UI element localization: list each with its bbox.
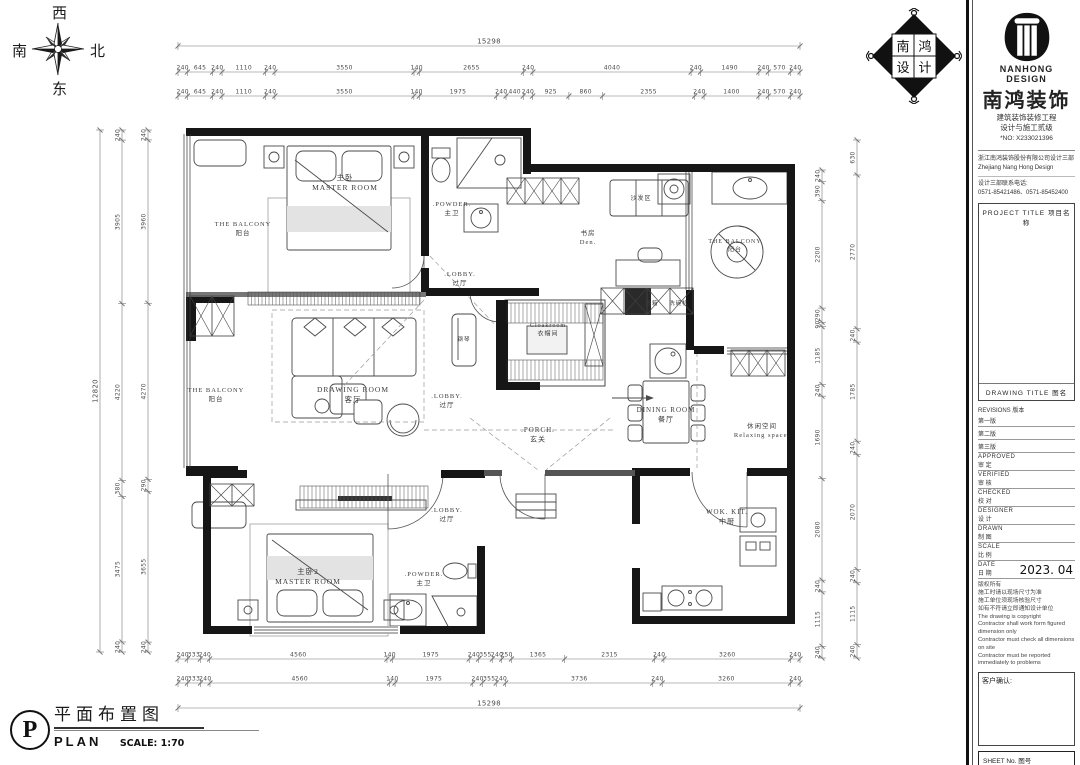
dim-value: 240 [653, 652, 665, 659]
dim-value: 1110 [236, 89, 252, 96]
drawing-title-label: DRAWING TITLE 图名 [979, 383, 1074, 397]
dim-value: 240 [789, 65, 801, 72]
date-value: 2023. 04 [1020, 563, 1073, 577]
field-cn: 审 核 [978, 478, 1075, 487]
room-label-sofa-area: 沙发区 [630, 194, 651, 202]
floor-plan-drawing: 主卧MASTER ROOMTHE BALCONY阳台.POWDER.主卫.LOB… [0, 0, 1080, 765]
note-line-4: 如有不符请立即通知设计单位 [978, 606, 1075, 614]
room-label-fridge: 冰箱 [645, 299, 658, 307]
dim-value: 1975 [426, 676, 442, 683]
dim-value: 860 [580, 89, 592, 96]
note-line-3: 施工单位须现场核验尺寸 [978, 598, 1075, 606]
dim-value: 240 [264, 89, 276, 96]
stamp-char-2: 鸿 [918, 39, 931, 54]
dim-value: 240 [815, 170, 822, 182]
window-glazing [686, 172, 692, 290]
note-line-8: Contractor must be reported immediately … [978, 653, 1075, 669]
company-name-en: NANHONG DESIGN [978, 64, 1075, 84]
revision-row-1: 第一版 [978, 414, 1075, 427]
room-label-lobby-3: .LOBBY.过厅 [431, 507, 462, 523]
note-line-5: The drawing is copyright [978, 614, 1075, 622]
dim-value: 570 [773, 89, 785, 96]
client-confirm-box[interactable]: 客户确认: [978, 672, 1075, 746]
dim-value: 1490 [721, 65, 737, 72]
dim-chain-bottom-row-2: 2403332404560140197524035524037362403260… [176, 676, 803, 688]
room-label-balcony-left: THE BALCONY阳台 [188, 387, 245, 403]
dim-value: 240 [815, 384, 822, 396]
dim-value: 90 [815, 320, 822, 328]
dim-value: 240 [850, 645, 857, 657]
room-label-dishwasher: 洗碗机 [669, 299, 689, 307]
dim-value: 3475 [115, 561, 122, 577]
dim-value: 240 [522, 89, 534, 96]
stamp-char-3: 设 [896, 60, 909, 75]
dim-value: 1110 [236, 65, 252, 72]
dim-value: 240 [211, 65, 223, 72]
dim-value: 240 [177, 89, 189, 96]
sheet-number-label: SHEET No. 图号 [983, 755, 1070, 765]
dim-value: 12820 [92, 379, 100, 403]
dim-value: 4270 [141, 383, 148, 399]
dim-value: 240 [850, 329, 857, 341]
signature-fields: APPROVED审 定VERIFIED审 核CHECKED校 对DESIGNER… [978, 453, 1075, 579]
dim-value: 240 [115, 129, 122, 141]
field-cn: 设 计 [978, 514, 1075, 523]
compass-west-label: 西 [52, 2, 67, 23]
dim-value: 645 [194, 65, 206, 72]
dim-value: 645 [194, 89, 206, 96]
hatch-layer [190, 178, 785, 508]
cabinet-xbox [210, 484, 254, 506]
dim-value: 240 [815, 646, 822, 658]
dim-value: 240 [693, 89, 705, 96]
plan-title-cn: 平面布置图 [54, 700, 204, 729]
cabinet-xbox [507, 178, 579, 204]
dim-value: 2070 [850, 504, 857, 520]
dim-value: 240 [468, 652, 480, 659]
closet-hatch [507, 303, 603, 323]
stamp-diamond-icon: 南 鸿 设 计 [866, 8, 962, 104]
dim-value: 140 [411, 65, 423, 72]
dim-chain-top-total: 15298 [176, 38, 803, 51]
room-label-relaxing-space: 休闲空间Relaxing space. [734, 421, 790, 439]
company-stamp: 南 鸿 设 计 [866, 8, 962, 104]
field-row-checked: CHECKED校 对 [978, 489, 1075, 507]
dim-value: 250 [500, 652, 512, 659]
revisions-label: REVISIONS 版本 [978, 405, 1075, 414]
dim-value: 140 [386, 676, 398, 683]
note-line-1: 版权所有 [978, 582, 1075, 590]
window-glazing [727, 348, 787, 354]
dim-value: 1400 [723, 89, 739, 96]
dim-value: 240 [815, 580, 822, 592]
field-row-scale: SCALE比 例 [978, 543, 1075, 561]
dim-value: 3960 [141, 213, 148, 229]
dim-chain-bottom-row-1: 2403332404560140197524035524025013652315… [176, 652, 803, 664]
dim-value: 3550 [336, 65, 352, 72]
room-label-balcony-top-left: THE BALCONY阳台 [215, 221, 272, 237]
compass-north-label: 北 [90, 40, 105, 61]
dim-value: 440 [508, 89, 520, 96]
dim-value: 570 [773, 65, 785, 72]
room-label-powder-2: .POWDER.主卫 [405, 571, 444, 587]
room-label-wok-kitchen: WOK. KIT.中厨 [706, 508, 748, 526]
field-cn: 审 定 [978, 460, 1075, 469]
note-line-2: 施工时请以现场尺寸为准 [978, 590, 1075, 598]
dim-value: 240 [471, 676, 483, 683]
field-cn: 比 例 [978, 550, 1075, 559]
dim-value: 15298 [477, 700, 501, 708]
dim-chain-top-row-1: 2406452401110240355014026552404040240149… [176, 65, 803, 77]
plan-title-block: P 平面布置图 PLAN SCALE: 1:70 [10, 700, 270, 751]
field-row-designer: DESIGNER设 计 [978, 507, 1075, 525]
phone-numbers: 0571-85421486、0571-85452400 [978, 189, 1075, 198]
dim-value: 4560 [292, 676, 308, 683]
cert-line-1: 建筑装饰装修工程 [978, 113, 1075, 123]
dim-value: 380 [115, 482, 122, 494]
compass-rose: 西 北 东 南 [6, 2, 106, 100]
revision-row-3: 第三版 [978, 440, 1075, 453]
dim-value: 240 [789, 652, 801, 659]
field-row-date: DATE日 期2023. 04 [978, 561, 1075, 579]
plan-title-en: PLAN [54, 734, 101, 749]
note-line-6: Contractor shall work form figured dimen… [978, 621, 1075, 637]
compass-east-label: 东 [52, 78, 67, 99]
dim-value: 240 [211, 89, 223, 96]
dim-value: 140 [410, 89, 422, 96]
dim-value: 3736 [571, 676, 587, 683]
dim-value: 240 [141, 129, 148, 141]
dim-value: 240 [522, 65, 534, 72]
dim-value: 1975 [450, 89, 466, 96]
closet-hatch [507, 360, 603, 380]
field-cn: 校 对 [978, 496, 1075, 505]
dim-value: 4040 [604, 65, 620, 72]
dim-value: 240 [757, 89, 769, 96]
title-block: NANHONG DESIGN 南鸿装饰 建筑装饰装修工程 设计与施工贰级 *NO… [966, 0, 1080, 765]
dim-value: 3655 [141, 558, 148, 574]
plan-scale: SCALE: 1:70 [120, 738, 184, 749]
dim-value: 3260 [718, 676, 734, 683]
project-title-label: PROJECT TITLE 项目名称 [979, 204, 1074, 227]
dim-chain-top-row-2: 2406452401110240355014019752404402409258… [176, 89, 803, 101]
dim-value: 1365 [530, 652, 546, 659]
compass-south-label: 南 [12, 40, 27, 61]
room-label-powder-1: .POWDER.主卫 [433, 201, 472, 217]
dim-value: 2770 [850, 244, 857, 260]
cabinet-xbox [585, 304, 603, 366]
revisions-section: REVISIONS 版本 第一版第二版第三版 [978, 405, 1075, 453]
dim-value: 140 [384, 652, 396, 659]
dim-value: 2355 [640, 89, 656, 96]
dim-value: 4560 [290, 652, 306, 659]
dim-value: 1185 [815, 347, 822, 363]
dim-value: 390 [815, 185, 822, 197]
cert-number: *NO: X233021396 [978, 135, 1075, 142]
dim-value: 355 [483, 676, 495, 683]
field-cn: 制 图 [978, 532, 1075, 541]
dim-value: 240 [850, 442, 857, 454]
dim-chain-right-outer: 6302770240178524020702401115240 [850, 138, 862, 661]
cert-line-2: 设计与施工贰级 [978, 123, 1075, 133]
room-label-lobby-2: .LOBBY.过厅 [431, 393, 462, 409]
dim-value: 240 [177, 65, 189, 72]
drawing-sheet: 主卧MASTER ROOMTHE BALCONY阳台.POWDER.主卫.LOB… [0, 0, 1080, 765]
field-row-approved: APPROVED审 定 [978, 453, 1075, 471]
dim-chain-left-total: 12820 [92, 128, 105, 655]
note-line-7: Contractor must check all dimensions on … [978, 637, 1075, 653]
room-label-lobby-1: .LOBBY.过厅 [444, 271, 475, 287]
dim-value: 2200 [815, 246, 822, 262]
furniture [192, 138, 787, 636]
dim-value: 2080 [815, 521, 822, 537]
field-row-verified: VERIFIED审 核 [978, 471, 1075, 489]
stamp-char-1: 南 [896, 39, 909, 54]
dept-name-en: Zhejiang Nang Hong Design [978, 164, 1075, 173]
dim-value: 1115 [850, 605, 857, 621]
dim-value: 4220 [115, 384, 122, 400]
dim-value: 1115 [815, 611, 822, 627]
dim-value: 15298 [477, 38, 501, 46]
dim-value: 290 [815, 309, 822, 321]
dim-value: 925 [545, 89, 557, 96]
dim-value: 2655 [463, 65, 479, 72]
dim-value: 240 [651, 676, 663, 683]
sheet-number-box: SHEET No. 图号 饰施 - 04 PROJECT No. 项目编号 [978, 751, 1075, 765]
dim-value: 3260 [719, 652, 735, 659]
plan-symbol-circle: P [10, 710, 50, 750]
phone-label: 设计三部联系电话: [978, 180, 1075, 189]
dim-value: 355 [479, 652, 491, 659]
dim-value: 240 [850, 570, 857, 582]
dim-value: 240 [115, 641, 122, 653]
dim-value: 3905 [115, 214, 122, 230]
dim-value: 240 [264, 65, 276, 72]
dim-value: 240 [495, 676, 507, 683]
copyright-notes: 版权所有施工时请以现场尺寸为准施工单位须现场核验尺寸如有不符请立即通知设计单位T… [978, 582, 1075, 668]
dim-value: 240 [141, 641, 148, 653]
dim-value: 1975 [423, 652, 439, 659]
dim-chain-right-inner: 2403902200290901185240169020802401115240 [815, 168, 827, 661]
revision-row-2: 第二版 [978, 427, 1075, 440]
room-label-piano: 钢琴 [457, 335, 470, 343]
dim-value: 240 [199, 676, 211, 683]
dim-value: 240 [789, 89, 801, 96]
company-column-logo-icon [1000, 12, 1054, 62]
dept-name-cn: 浙江南鸿装饰股份有限公司设计三部 [978, 155, 1075, 164]
dim-value: 240 [690, 65, 702, 72]
dim-value: 630 [850, 151, 857, 163]
dim-value: 2315 [601, 652, 617, 659]
dim-value: 240 [789, 676, 801, 683]
closet-hatch [300, 486, 428, 508]
stamp-char-4: 计 [918, 60, 931, 75]
dim-value: 1785 [850, 383, 857, 399]
dim-chain-left-outer: 240390542203803475240 [115, 128, 127, 655]
company-name-cn: 南鸿装饰 [978, 84, 1075, 113]
dim-value: 240 [199, 652, 211, 659]
dim-value: 240 [495, 89, 507, 96]
project-title-box: PROJECT TITLE 项目名称 DRAWING TITLE 图名 [978, 203, 1075, 401]
dim-value: 290 [141, 479, 148, 491]
room-label-balcony-top-right: THE BALCONY阳台 [708, 239, 761, 254]
room-labels: 主卧MASTER ROOMTHE BALCONY阳台.POWDER.主卫.LOB… [188, 172, 790, 587]
dim-chain-left-inner: 240396042702903655240 [141, 128, 153, 655]
field-row-drawn: DRAWN制 图 [978, 525, 1075, 543]
dim-value: 1690 [815, 429, 822, 445]
room-label-den: 书房Den. [580, 228, 596, 246]
dim-value: 240 [757, 65, 769, 72]
room-label-porch: .PORCH.玄关 [521, 426, 555, 444]
dim-value: 3550 [336, 89, 352, 96]
client-confirm-label: 客户确认: [982, 678, 1012, 685]
